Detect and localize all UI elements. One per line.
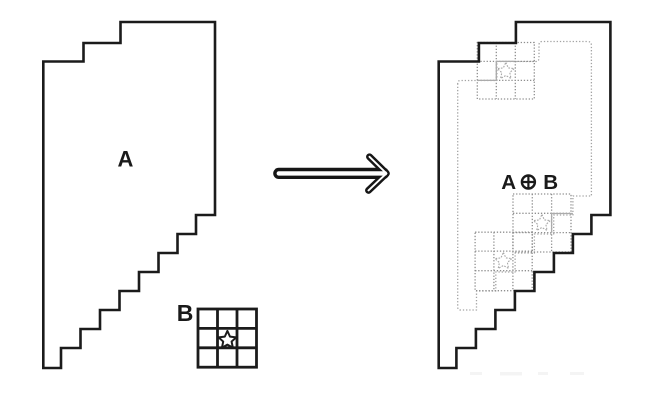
svg-text:A: A — [501, 171, 516, 194]
svg-text:B: B — [543, 171, 558, 194]
svg-text:A: A — [118, 147, 134, 172]
svg-text:B: B — [177, 300, 194, 326]
